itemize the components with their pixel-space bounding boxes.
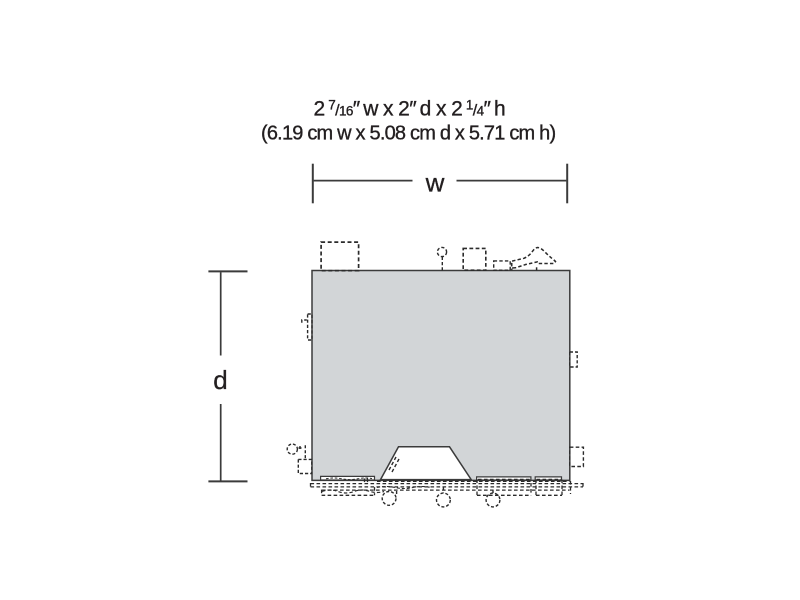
svg-text:w: w	[425, 168, 445, 198]
svg-text:(6.19 cm w x 5.08 cm d x 5.71: (6.19 cm w x 5.08 cm d x 5.71 cm h)	[261, 123, 555, 145]
svg-text:d: d	[213, 365, 227, 395]
svg-text:2 7/16″ w x 2″ d x 2 1/4″ h: 2 7/16″ w x 2″ d x 2 1/4″ h	[314, 97, 506, 120]
